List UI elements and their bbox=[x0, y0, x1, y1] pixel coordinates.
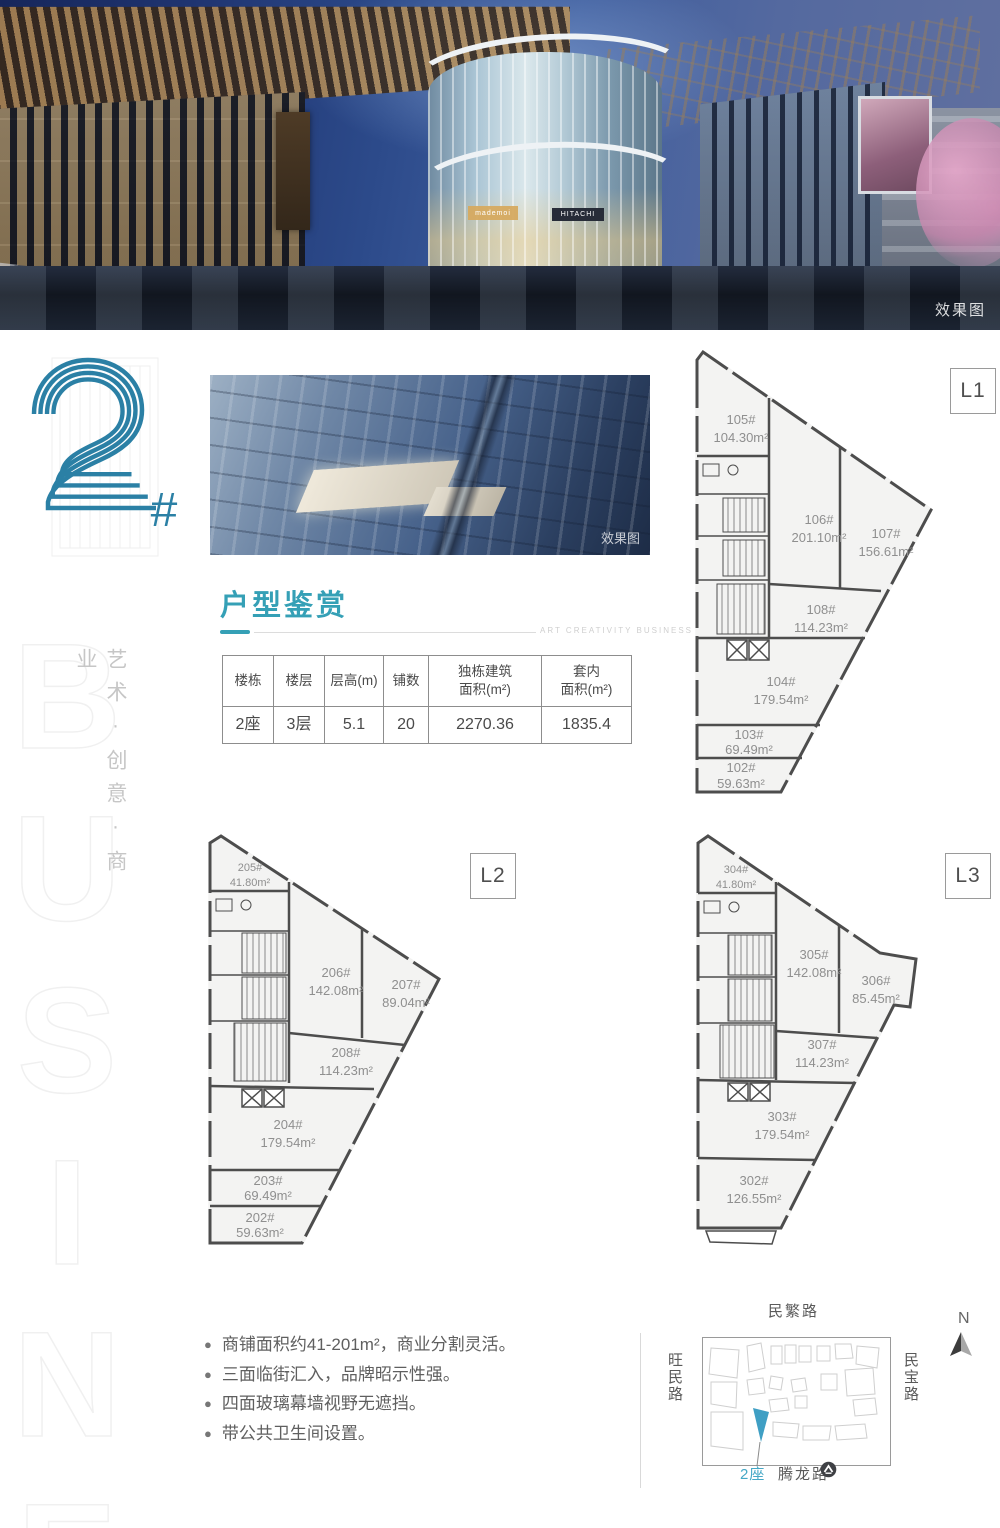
svg-text:206#: 206# bbox=[322, 965, 352, 980]
hash-mark: # bbox=[151, 484, 178, 537]
col-header: 层高(m) bbox=[324, 656, 383, 706]
metro-station-icon bbox=[820, 1461, 837, 1478]
svg-text:126.55m²: 126.55m² bbox=[727, 1191, 783, 1206]
slogan-art-creativity-business: 艺术·创意·商业 bbox=[70, 648, 130, 898]
svg-text:202#: 202# bbox=[246, 1210, 276, 1225]
svg-text:201.10m²: 201.10m² bbox=[792, 530, 848, 545]
svg-text:307#: 307# bbox=[808, 1037, 838, 1052]
svg-text:107#: 107# bbox=[872, 526, 902, 541]
svg-text:69.49m²: 69.49m² bbox=[725, 742, 773, 757]
svg-text:208#: 208# bbox=[332, 1045, 362, 1060]
bullet: ● bbox=[204, 1368, 212, 1382]
spec-table: 楼栋 楼层 层高(m) 铺数 独栋建筑面积(m²) 套内面积(m²) 2座 3层… bbox=[222, 655, 632, 744]
svg-text:106#: 106# bbox=[805, 512, 835, 527]
stair-hatch bbox=[242, 933, 286, 973]
svg-text:104#: 104# bbox=[767, 674, 797, 689]
svg-text:304#: 304# bbox=[724, 864, 749, 876]
aerial-rendering-photo: 效果图 bbox=[210, 375, 650, 555]
feature-list: ●商铺面积约41-201m²，商业分割灵活。 ●三面临街汇入，品牌昭示性强。 ●… bbox=[204, 1336, 644, 1455]
north-arrow-icon bbox=[950, 1332, 972, 1358]
svg-text:179.54m²: 179.54m² bbox=[261, 1135, 317, 1150]
cell-floors: 3层 bbox=[273, 706, 324, 743]
svg-text:142.08m²: 142.08m² bbox=[309, 983, 365, 998]
col-header: 套内面积(m²) bbox=[541, 656, 631, 706]
stair-hatch bbox=[728, 979, 772, 1021]
svg-text:41.80m²: 41.80m² bbox=[230, 877, 271, 889]
bullet: ● bbox=[204, 1427, 212, 1441]
svg-text:59.63m²: 59.63m² bbox=[236, 1225, 284, 1240]
svg-text:59.63m²: 59.63m² bbox=[717, 776, 765, 791]
cell-net-area: 1835.4 bbox=[541, 706, 631, 743]
road-label-left: 旺民路 bbox=[664, 1352, 685, 1452]
svg-text:89.04m²: 89.04m² bbox=[382, 995, 430, 1010]
plan-label-l3: L3 bbox=[945, 853, 991, 899]
cell-shops: 20 bbox=[383, 706, 428, 743]
col-header: 楼层 bbox=[273, 656, 324, 706]
svg-text:114.23m²: 114.23m² bbox=[319, 1063, 374, 1078]
location-map bbox=[702, 1337, 891, 1466]
title-divider-line bbox=[254, 632, 536, 633]
plan-label-l2: L2 bbox=[470, 853, 516, 899]
plan-label-l1: L1 bbox=[950, 368, 996, 414]
svg-text:69.49m²: 69.49m² bbox=[244, 1188, 292, 1203]
stair-hatch bbox=[728, 935, 772, 975]
col-header: 楼栋 bbox=[223, 656, 273, 706]
road-label-right: 民宝路 bbox=[900, 1352, 921, 1452]
feature-item: ●带公共卫生间设置。 bbox=[204, 1425, 644, 1444]
brochure-page: mademoi HITACHI 效果图 # BUSINESS 艺术·创意·商业 … bbox=[0, 0, 1000, 1528]
vertical-signboard bbox=[276, 112, 310, 230]
svg-text:108#: 108# bbox=[807, 602, 837, 617]
hero-rendering-photo: mademoi HITACHI 效果图 bbox=[0, 0, 1000, 330]
svg-text:142.08m²: 142.08m² bbox=[787, 965, 843, 980]
svg-text:204#: 204# bbox=[274, 1117, 304, 1132]
storefront-sign: mademoi bbox=[468, 206, 518, 220]
road-label-top: 民繁路 bbox=[768, 1300, 819, 1321]
cell-gross-area: 2270.36 bbox=[428, 706, 541, 743]
col-header: 铺数 bbox=[383, 656, 428, 706]
map-building-label: 2座 bbox=[740, 1463, 765, 1484]
svg-text:114.23m²: 114.23m² bbox=[795, 1055, 850, 1070]
svg-text:104.30m²: 104.30m² bbox=[714, 430, 770, 445]
svg-text:156.61m²: 156.61m² bbox=[859, 544, 915, 559]
floorplan-l1: 105#104.30m² 106#201.10m² 107#156.61m² 1… bbox=[683, 348, 943, 808]
feature-item: ●商铺面积约41-201m²，商业分割灵活。 bbox=[204, 1336, 644, 1355]
entry-canopy bbox=[706, 1231, 776, 1244]
bullet: ● bbox=[204, 1397, 212, 1411]
svg-text:302#: 302# bbox=[740, 1173, 770, 1188]
vertical-divider bbox=[640, 1333, 641, 1488]
col-header: 独栋建筑面积(m²) bbox=[428, 656, 541, 706]
block-2-logo: # bbox=[6, 344, 198, 586]
rendering-watermark: 效果图 bbox=[935, 299, 986, 320]
svg-text:114.23m²: 114.23m² bbox=[794, 620, 849, 635]
cell-height: 5.1 bbox=[324, 706, 383, 743]
north-label: N bbox=[958, 1310, 970, 1328]
plaza-ground bbox=[0, 266, 1000, 330]
cell-building: 2座 bbox=[223, 706, 273, 743]
svg-text:102#: 102# bbox=[727, 760, 757, 775]
stair-hatch bbox=[717, 584, 765, 634]
bullet: ● bbox=[204, 1338, 212, 1352]
svg-text:179.54m²: 179.54m² bbox=[755, 1127, 811, 1142]
svg-text:303#: 303# bbox=[768, 1109, 798, 1124]
rendering-watermark: 效果图 bbox=[601, 528, 640, 547]
svg-text:205#: 205# bbox=[238, 862, 263, 874]
stair-hatch bbox=[234, 1023, 286, 1081]
svg-text:105#: 105# bbox=[727, 412, 757, 427]
section-tagline: ART CREATIVITY BUSINESS bbox=[540, 626, 693, 635]
map-parcels bbox=[709, 1343, 879, 1450]
stair-hatch bbox=[723, 540, 765, 576]
map-highlight-building-2 bbox=[753, 1408, 769, 1442]
section-title: 户型鉴赏 bbox=[220, 582, 348, 624]
title-accent-bar bbox=[220, 630, 250, 634]
floorplan-l2: 205#41.80m² 206#142.08m² 207#89.04m² 208… bbox=[196, 833, 456, 1258]
svg-text:207#: 207# bbox=[392, 977, 422, 992]
feature-item: ●四面玻璃幕墙视野无遮挡。 bbox=[204, 1395, 644, 1414]
floorplan-l3: 304#41.80m² 305#142.08m² 306#85.45m² 307… bbox=[684, 833, 934, 1258]
svg-text:305#: 305# bbox=[800, 947, 830, 962]
svg-text:103#: 103# bbox=[735, 727, 765, 742]
svg-text:306#: 306# bbox=[862, 973, 892, 988]
stair-hatch bbox=[720, 1025, 774, 1078]
feature-item: ●三面临街汇入，品牌昭示性强。 bbox=[204, 1366, 644, 1385]
stair-hatch bbox=[723, 498, 765, 532]
storefront-sign: HITACHI bbox=[552, 208, 604, 221]
svg-text:179.54m²: 179.54m² bbox=[754, 692, 810, 707]
stair-hatch bbox=[242, 977, 286, 1019]
svg-text:41.80m²: 41.80m² bbox=[716, 879, 757, 891]
svg-text:203#: 203# bbox=[254, 1173, 284, 1188]
svg-text:85.45m²: 85.45m² bbox=[852, 991, 900, 1006]
